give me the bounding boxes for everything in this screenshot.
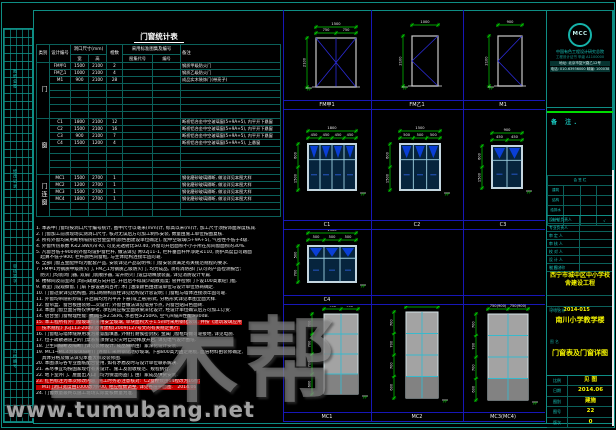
notes-block: 1. 本表中门窗均按洞口尺寸编号统计, 图中尺寸以毫米(mm)计, 标高以米(m… xyxy=(36,226,284,402)
svg-text:500: 500 xyxy=(313,235,321,239)
svg-text:1500: 1500 xyxy=(327,230,337,232)
svg-text:600: 600 xyxy=(307,380,311,388)
svg-text:2100: 2100 xyxy=(484,56,488,66)
table-row: C21500210016断桥铝合金中空玻璃窗(5+9A+5), 内平开下悬窗 xyxy=(37,126,281,133)
elevation-drawing: 9002100 xyxy=(468,14,542,100)
svg-text:700: 700 xyxy=(471,321,475,329)
svg-text:500: 500 xyxy=(329,235,337,239)
company-tel: 电话: 010-63936000 邮编: 100038 xyxy=(550,67,610,72)
title-block: MCC 中国有色工程设计研究总院 工程设计证书 甲级 A1100000 地址: … xyxy=(546,10,614,424)
svg-text:700: 700 xyxy=(293,269,297,277)
svg-text:1000: 1000 xyxy=(420,20,430,24)
subproject-label: 子项名称 xyxy=(550,308,565,314)
schedule: 类别设计编号洞口尺寸(mm)樘数采用标准图集及编号备注宽高图集代号编号门FM甲1… xyxy=(36,44,281,217)
svg-text:500: 500 xyxy=(293,251,297,259)
svg-text:1500: 1500 xyxy=(385,173,389,183)
svg-text:750: 750 xyxy=(346,306,354,308)
staff-rows: 设计总负责人专业负责人审 定 人审 核 人校 对 人设 计 人制 图 人 xyxy=(547,215,613,272)
svg-text:500: 500 xyxy=(403,133,411,137)
company-addr: 地址: 北京市复兴路乙12号 xyxy=(550,61,610,66)
elevation-FM乙1: 10002100 xyxy=(380,14,458,100)
table-row: FM乙1100021004钢质乙级防火门 xyxy=(37,70,281,77)
company-cert: 工程设计证书 甲级 A1100000 xyxy=(547,55,613,60)
drawing-label: MC3(MC4) xyxy=(461,414,545,420)
table-row: M1900210028成品实木装饰门(带亮子) xyxy=(37,77,281,84)
drawing-label: C1 xyxy=(285,222,369,228)
svg-text:450: 450 xyxy=(335,133,343,137)
svg-text:900: 900 xyxy=(507,20,515,24)
svg-text:1500: 1500 xyxy=(331,22,341,26)
table-row xyxy=(37,105,281,112)
meta-row: 图号22 xyxy=(547,407,613,417)
svg-text:450: 450 xyxy=(496,135,504,139)
right-edge-line xyxy=(612,170,614,426)
elevation-drawing: 15005005005006001500 xyxy=(378,112,458,218)
label-band: FM甲1FM乙1M1 xyxy=(283,100,545,110)
elevation-drawing: 18004504504504506001500 xyxy=(286,112,374,218)
svg-text:700: 700 xyxy=(307,340,311,348)
elevation-M1: 9002100 xyxy=(468,14,542,100)
note-line: 24. 门窗数量最终以施工现场实际复核数量为准. xyxy=(36,391,284,397)
elevation-C2: 15005005005006001500 xyxy=(378,112,458,218)
strip-label: 修改记录 xyxy=(12,169,18,189)
drawing-label: MC1 xyxy=(285,414,369,420)
schedule-title: 门窗统计表 xyxy=(36,24,282,43)
staff-row: 审 核 人 xyxy=(547,240,613,248)
svg-text:500: 500 xyxy=(430,133,438,137)
svg-text:2100: 2100 xyxy=(302,57,306,67)
door-window-schedule-table: 类别设计编号洞口尺寸(mm)樘数采用标准图集及编号备注宽高图集代号编号门FM甲1… xyxy=(36,44,280,217)
elevation-drawing: 750750700700700600 xyxy=(286,306,374,410)
label-band: MC1MC2MC3(MC4) xyxy=(283,412,545,422)
meta-row: 版次0 xyxy=(547,418,613,428)
table-row xyxy=(37,98,281,105)
svg-text:750: 750 xyxy=(343,28,351,32)
elevation-drawing: 10002100 xyxy=(380,14,458,100)
elevation-C4: 1500500500500500700 xyxy=(286,230,374,294)
svg-text:700: 700 xyxy=(307,360,311,368)
table-row: C4150012004断桥铝合金中空玻璃窗(5+9A+5), 上悬窗 xyxy=(37,140,281,147)
svg-text:2100: 2100 xyxy=(398,56,402,66)
svg-text:900: 900 xyxy=(504,128,512,132)
svg-text:500: 500 xyxy=(417,133,425,137)
meta-row: 图别建施 xyxy=(547,397,613,407)
table-row: MC4180027001钢化磨砂玻璃隔断, 做法详见本图大样 xyxy=(37,196,281,203)
elevation-C1: 18004504504504506001500 xyxy=(286,112,374,218)
drawing-label: C3 xyxy=(461,222,545,228)
drawing-label: FM甲1 xyxy=(285,102,369,108)
elevation-C3: 9004504506001500 xyxy=(470,112,542,218)
meta-row: 比例见 图 xyxy=(547,376,613,386)
subproject-name: 南川小学教学楼 xyxy=(547,315,613,325)
svg-text:750: 750 xyxy=(329,306,337,308)
drawing-label: MC2 xyxy=(375,414,459,420)
table-row xyxy=(37,84,281,91)
mcc-logo: MCC xyxy=(568,23,592,47)
table-row: 门FM甲1150021002钢质甲级防火门 xyxy=(37,63,281,70)
sheet-name: 门窗表及门窗详图 xyxy=(547,349,613,358)
drawing-label: C2 xyxy=(375,222,459,228)
svg-text:600: 600 xyxy=(293,151,297,159)
table-row xyxy=(37,168,281,175)
svg-text:450: 450 xyxy=(347,133,355,137)
table-row: C390021007断桥铝合金中空玻璃窗(5+9A+5), 内平开下悬窗 xyxy=(37,133,281,140)
cad-sheet: 图纸会签修改记录审核签字归档编号 门窗统计表 类别设计编号洞口尺寸(mm)樘数采… xyxy=(0,0,616,430)
elevation-drawing: 9004504506001500 xyxy=(470,112,542,218)
table-row xyxy=(37,112,281,119)
staff-row: 设 计 人 xyxy=(547,256,613,264)
svg-text:700: 700 xyxy=(389,319,393,327)
drawing-label: M1 xyxy=(461,102,545,108)
elevation-MC1: 750750700700700600 xyxy=(286,306,374,410)
elevation-MC3(MC4): 750(900)750(900)700700700600 xyxy=(462,304,548,410)
project-label: 工程名称 xyxy=(550,265,565,271)
design-no-row: 设计号2014-015 xyxy=(547,295,613,307)
meta-row: 日期2014.06 xyxy=(547,386,613,396)
svg-text:450: 450 xyxy=(311,133,319,137)
table-row xyxy=(37,203,281,210)
strip-label: 审核签字 xyxy=(12,264,18,284)
drawing-index-strip: 图纸会签修改记录审核签字归档编号 xyxy=(3,28,33,423)
svg-text:600: 600 xyxy=(477,152,481,160)
company-header: MCC 中国有色工程设计研究总院 工程设计证书 甲级 A1100000 地址: … xyxy=(547,11,613,108)
staff-row: 审 定 人 xyxy=(547,232,613,240)
svg-text:1500: 1500 xyxy=(293,173,297,183)
svg-text:700: 700 xyxy=(307,320,311,328)
svg-text:700: 700 xyxy=(389,362,393,370)
label-band: C1C2C3 xyxy=(283,220,545,230)
svg-text:700: 700 xyxy=(471,364,475,372)
elevation-drawing: 1500500500500500700 xyxy=(286,230,374,294)
elevation-MC2: 1200700700700600 xyxy=(378,306,458,410)
table-row: 门连窗MC1150027001钢化磨砂玻璃隔断, 做法详见本图大样 xyxy=(37,175,281,182)
svg-text:1500: 1500 xyxy=(415,126,425,130)
schedule-title-text: 门窗统计表 xyxy=(134,32,184,43)
strip-label: 图纸会签 xyxy=(12,69,18,89)
svg-text:750(900): 750(900) xyxy=(490,304,507,308)
drawing-label: FM乙1 xyxy=(375,102,459,108)
svg-text:750(900): 750(900) xyxy=(510,304,527,308)
green-divider xyxy=(547,111,613,113)
svg-text:500: 500 xyxy=(345,235,353,239)
table-row: 窗C11800210012断桥铝合金中空玻璃窗(5+9A+5), 内平开下悬窗 xyxy=(37,119,281,126)
design-no-value: 2014-015 xyxy=(563,307,589,313)
table-row: MC3150027001钢化磨砂玻璃隔断, 做法详见本图大样 xyxy=(37,189,281,196)
elevation-drawing: 15007507502100 xyxy=(288,14,374,100)
remark-label: 备 注. xyxy=(551,117,579,126)
table-row xyxy=(37,210,281,217)
table-row xyxy=(37,161,281,168)
svg-text:1500: 1500 xyxy=(477,172,481,182)
svg-text:600: 600 xyxy=(389,383,393,391)
svg-text:700: 700 xyxy=(471,342,475,350)
table-row xyxy=(37,147,281,154)
svg-text:1800: 1800 xyxy=(327,126,337,130)
svg-text:450: 450 xyxy=(323,133,331,137)
staff-row: 设计总负责人 xyxy=(547,216,613,224)
strip-label: 归档编号 xyxy=(12,349,18,369)
table-row xyxy=(37,154,281,161)
grid-line xyxy=(283,10,284,422)
svg-text:600: 600 xyxy=(385,151,389,159)
svg-text:600: 600 xyxy=(471,385,475,393)
project-name: 西宁市城中区中小学校舍建设工程 xyxy=(547,272,613,288)
table-row xyxy=(37,91,281,98)
staff-row: 校 对 人 xyxy=(547,248,613,256)
elevation-drawing: 750(900)750(900)700700700600 xyxy=(462,304,548,410)
staff-row: 专业负责人 xyxy=(547,224,613,232)
drawing-label: C4 xyxy=(285,297,369,303)
svg-text:750: 750 xyxy=(323,28,331,32)
svg-text:700: 700 xyxy=(389,340,393,348)
sheet-name-label: 图 名 xyxy=(550,339,559,345)
elevation-FM甲1: 15007507502100 xyxy=(288,14,374,100)
meta-rows: 比例见 图日期2014.06图别建施图号22版次0 xyxy=(547,375,613,428)
elevation-drawing: 1200700700700600 xyxy=(378,306,458,410)
table-row: MC2120027001钢化磨砂玻璃隔断, 做法详见本图大样 xyxy=(37,182,281,189)
svg-text:450: 450 xyxy=(511,135,519,139)
